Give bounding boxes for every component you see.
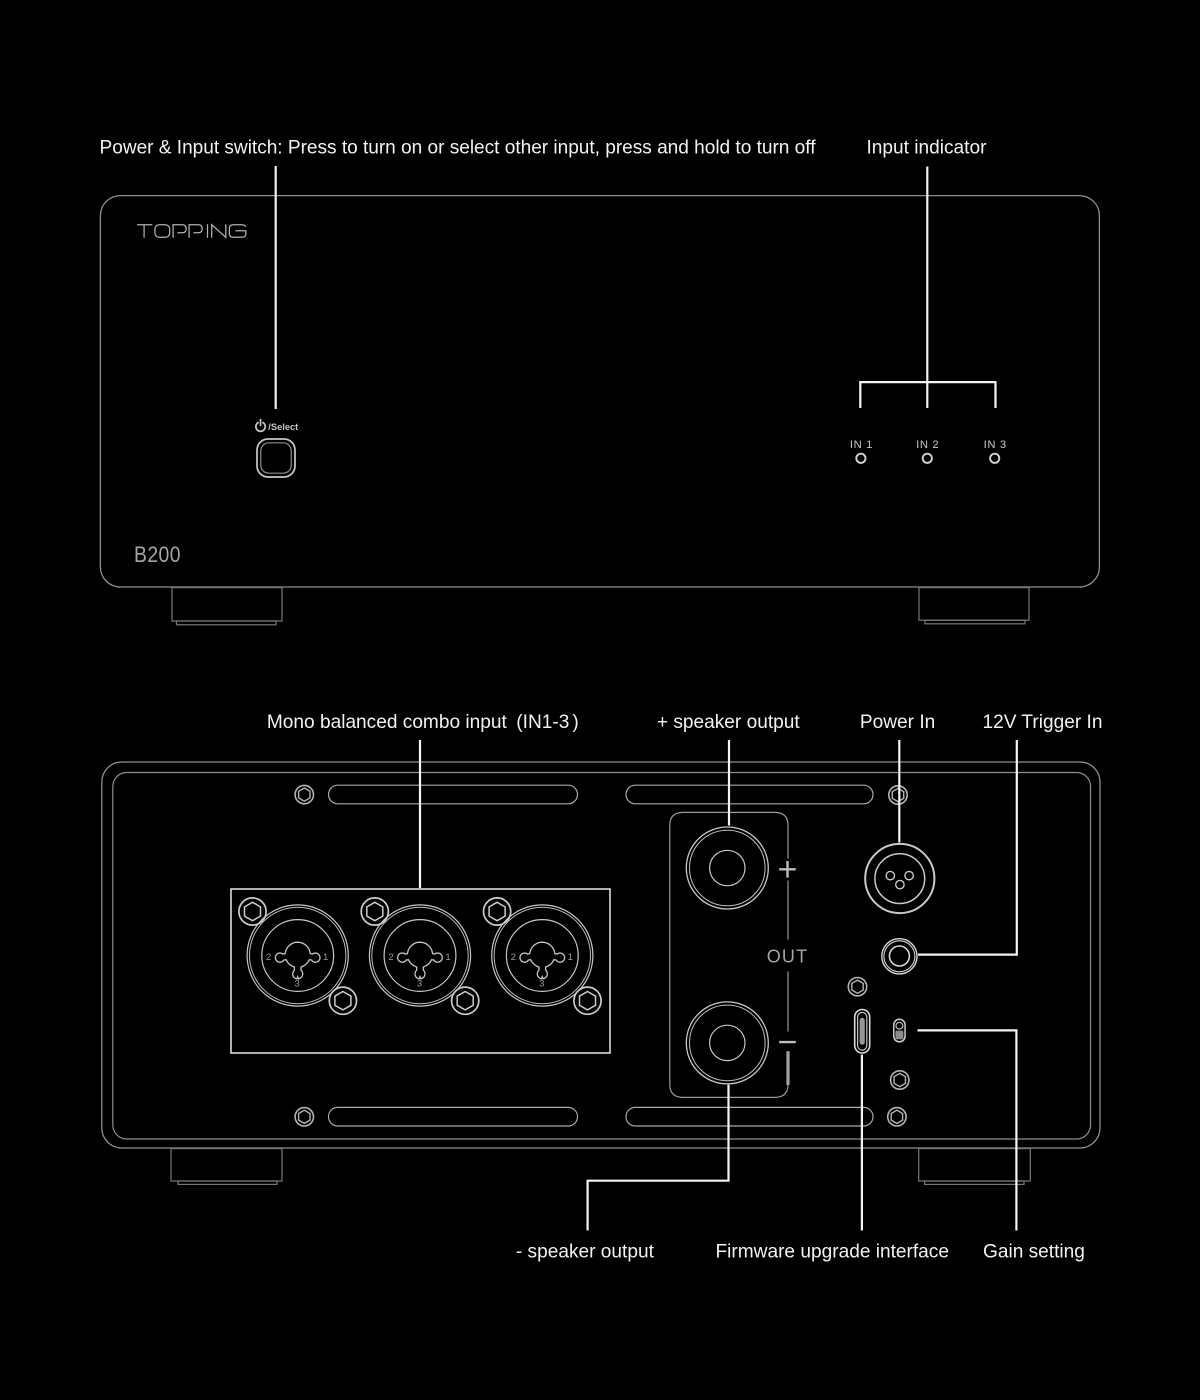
- svg-text:OUT: OUT: [767, 947, 809, 967]
- svg-text:Input indicator: Input indicator: [867, 137, 988, 158]
- svg-text:IN 2: IN 2: [916, 439, 939, 451]
- svg-text:Power & Input switch: Press to: Power & Input switch: Press to turn on o…: [100, 137, 817, 158]
- svg-text:Power In: Power In: [860, 712, 935, 733]
- svg-text:B200: B200: [134, 543, 181, 567]
- svg-text:/Select: /Select: [268, 422, 298, 432]
- svg-text:+ speaker output: + speaker output: [657, 712, 800, 733]
- svg-text:Gain setting: Gain setting: [983, 1242, 1085, 1263]
- svg-text:IN 1: IN 1: [850, 439, 873, 451]
- svg-text:Firmware upgrade interface: Firmware upgrade interface: [716, 1242, 949, 1263]
- svg-text:IN 3: IN 3: [984, 439, 1007, 451]
- svg-text:12V Trigger In: 12V Trigger In: [983, 712, 1103, 733]
- svg-text:Mono balanced combo input(IN1-: Mono balanced combo input(IN1-3): [267, 712, 579, 733]
- svg-text:- speaker output: - speaker output: [516, 1242, 655, 1263]
